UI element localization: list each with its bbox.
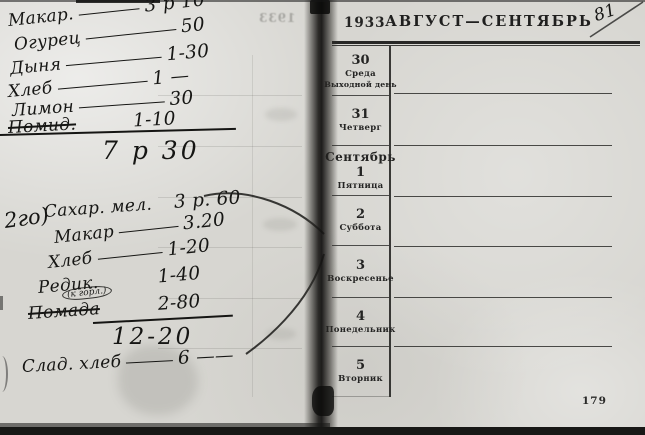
- hand-gap: [157, 204, 169, 206]
- right-page: 1933 АВГУСТ—СЕНТЯБРЬ 30 Среда Выходной д…: [332, 0, 645, 435]
- day-row-sep2: 2 Суббота: [332, 195, 389, 245]
- header-rule: [332, 41, 640, 44]
- day-note: Выходной день: [324, 80, 397, 89]
- writing-line: [394, 196, 612, 197]
- hand-gap: [81, 123, 128, 126]
- day-month: Сентябрь: [325, 150, 396, 164]
- writing-line: [394, 145, 612, 146]
- item-price: 1-30: [166, 41, 210, 66]
- day-weekday: Среда: [345, 69, 376, 79]
- left-page: 1933 Макар. 3 р 10 Огурец 50 Дыня 1-30 Х…: [0, 0, 308, 435]
- hand-dash: [79, 101, 165, 108]
- hand-dash: [126, 360, 173, 363]
- day-row-sep1: Сентябрь 1 Пятница: [332, 145, 389, 195]
- item-price: 6 ——: [177, 345, 234, 369]
- scan-edge-top-dark: [76, 0, 160, 3]
- day-weekday: Четверг: [339, 123, 382, 133]
- hand-dash: [79, 8, 140, 15]
- row-separator: [332, 195, 389, 196]
- hand-dash: [66, 57, 162, 66]
- scan-edge-bottom-shadow: [0, 423, 330, 428]
- hand-dash: [58, 81, 148, 90]
- item-name: Макар: [53, 222, 115, 248]
- writing-line: [394, 297, 612, 298]
- item-price: 3 р. 60: [173, 187, 241, 213]
- day-row-sep4: 4 Понедельник: [332, 297, 389, 346]
- day-row-sep5: 5 Вторник: [332, 346, 389, 396]
- ghost-smudge: [265, 108, 297, 121]
- hand-gap: [103, 279, 153, 284]
- list2-total: 12-20: [112, 324, 193, 350]
- day-number: 31: [351, 107, 369, 122]
- item-name: Макар.: [7, 4, 75, 31]
- day-row-aug30: 30 Среда Выходной день: [332, 47, 389, 95]
- item-price: 50: [180, 14, 206, 37]
- calendar-title: АВГУСТ—СЕНТЯБРЬ: [384, 13, 594, 30]
- row-separator: [332, 297, 389, 298]
- row-separator: [332, 95, 389, 96]
- day-weekday: Пятница: [338, 181, 384, 191]
- item-price: 30: [169, 87, 195, 110]
- item-price: 1-40: [157, 263, 201, 288]
- day-number: 5: [356, 358, 365, 373]
- list1-total: 7 р 30: [102, 136, 200, 165]
- row-separator: [332, 346, 389, 347]
- page-number: 179: [582, 395, 607, 407]
- ghost-mirrored-year: 1933: [258, 11, 295, 25]
- day-row-sep3: 3 Воскресенье: [332, 245, 389, 297]
- item-name: Хлеб: [47, 248, 93, 273]
- day-number: 1: [356, 165, 365, 180]
- diary-scan: 1933 Макар. 3 р 10 Огурец 50 Дыня 1-30 Х…: [0, 0, 645, 435]
- hand-dash: [97, 252, 162, 260]
- hand-dash: [86, 29, 176, 39]
- header-rule-thin: [332, 45, 640, 46]
- writing-line: [394, 93, 612, 94]
- day-weekday: Понедельник: [325, 325, 395, 335]
- item-name: Слад. хлеб: [22, 352, 122, 377]
- row-separator: [332, 145, 389, 146]
- item-name: Огурец: [13, 28, 82, 55]
- day-weekday: Воскресенье: [327, 274, 394, 284]
- scan-edge-bottom: [0, 427, 645, 435]
- day-number: 30: [351, 53, 369, 68]
- item-price: 1-20: [166, 235, 211, 260]
- row-separator: [332, 396, 389, 397]
- hand-gap: [105, 306, 153, 310]
- item-price: 1 —: [151, 65, 190, 89]
- item-name: Дыня: [9, 55, 62, 79]
- date-column-divider: [389, 46, 391, 397]
- item-price: 2-80: [157, 291, 201, 315]
- item-price: 3.20: [182, 209, 226, 234]
- day-number: 3: [356, 258, 365, 273]
- item-name: Помада: [27, 299, 100, 324]
- hand-dash: [119, 226, 178, 233]
- writing-line: [394, 346, 612, 347]
- ghost-smudge: [266, 328, 296, 340]
- day-number: 2: [356, 207, 365, 222]
- item-price: 1-10: [133, 108, 177, 131]
- corner-handwritten-note: 81: [591, 0, 618, 26]
- ghost-smudge: [263, 218, 297, 231]
- day-weekday: Вторник: [338, 374, 383, 384]
- writing-line: [394, 246, 612, 247]
- day-number: 4: [356, 309, 365, 324]
- ghost-column-line: [252, 55, 253, 397]
- calendar-year: 1933: [344, 15, 386, 31]
- row-separator: [332, 245, 389, 246]
- edge-mark: [0, 296, 3, 310]
- day-row-aug31: 31 Четверг: [332, 95, 389, 145]
- day-weekday: Суббота: [339, 223, 381, 233]
